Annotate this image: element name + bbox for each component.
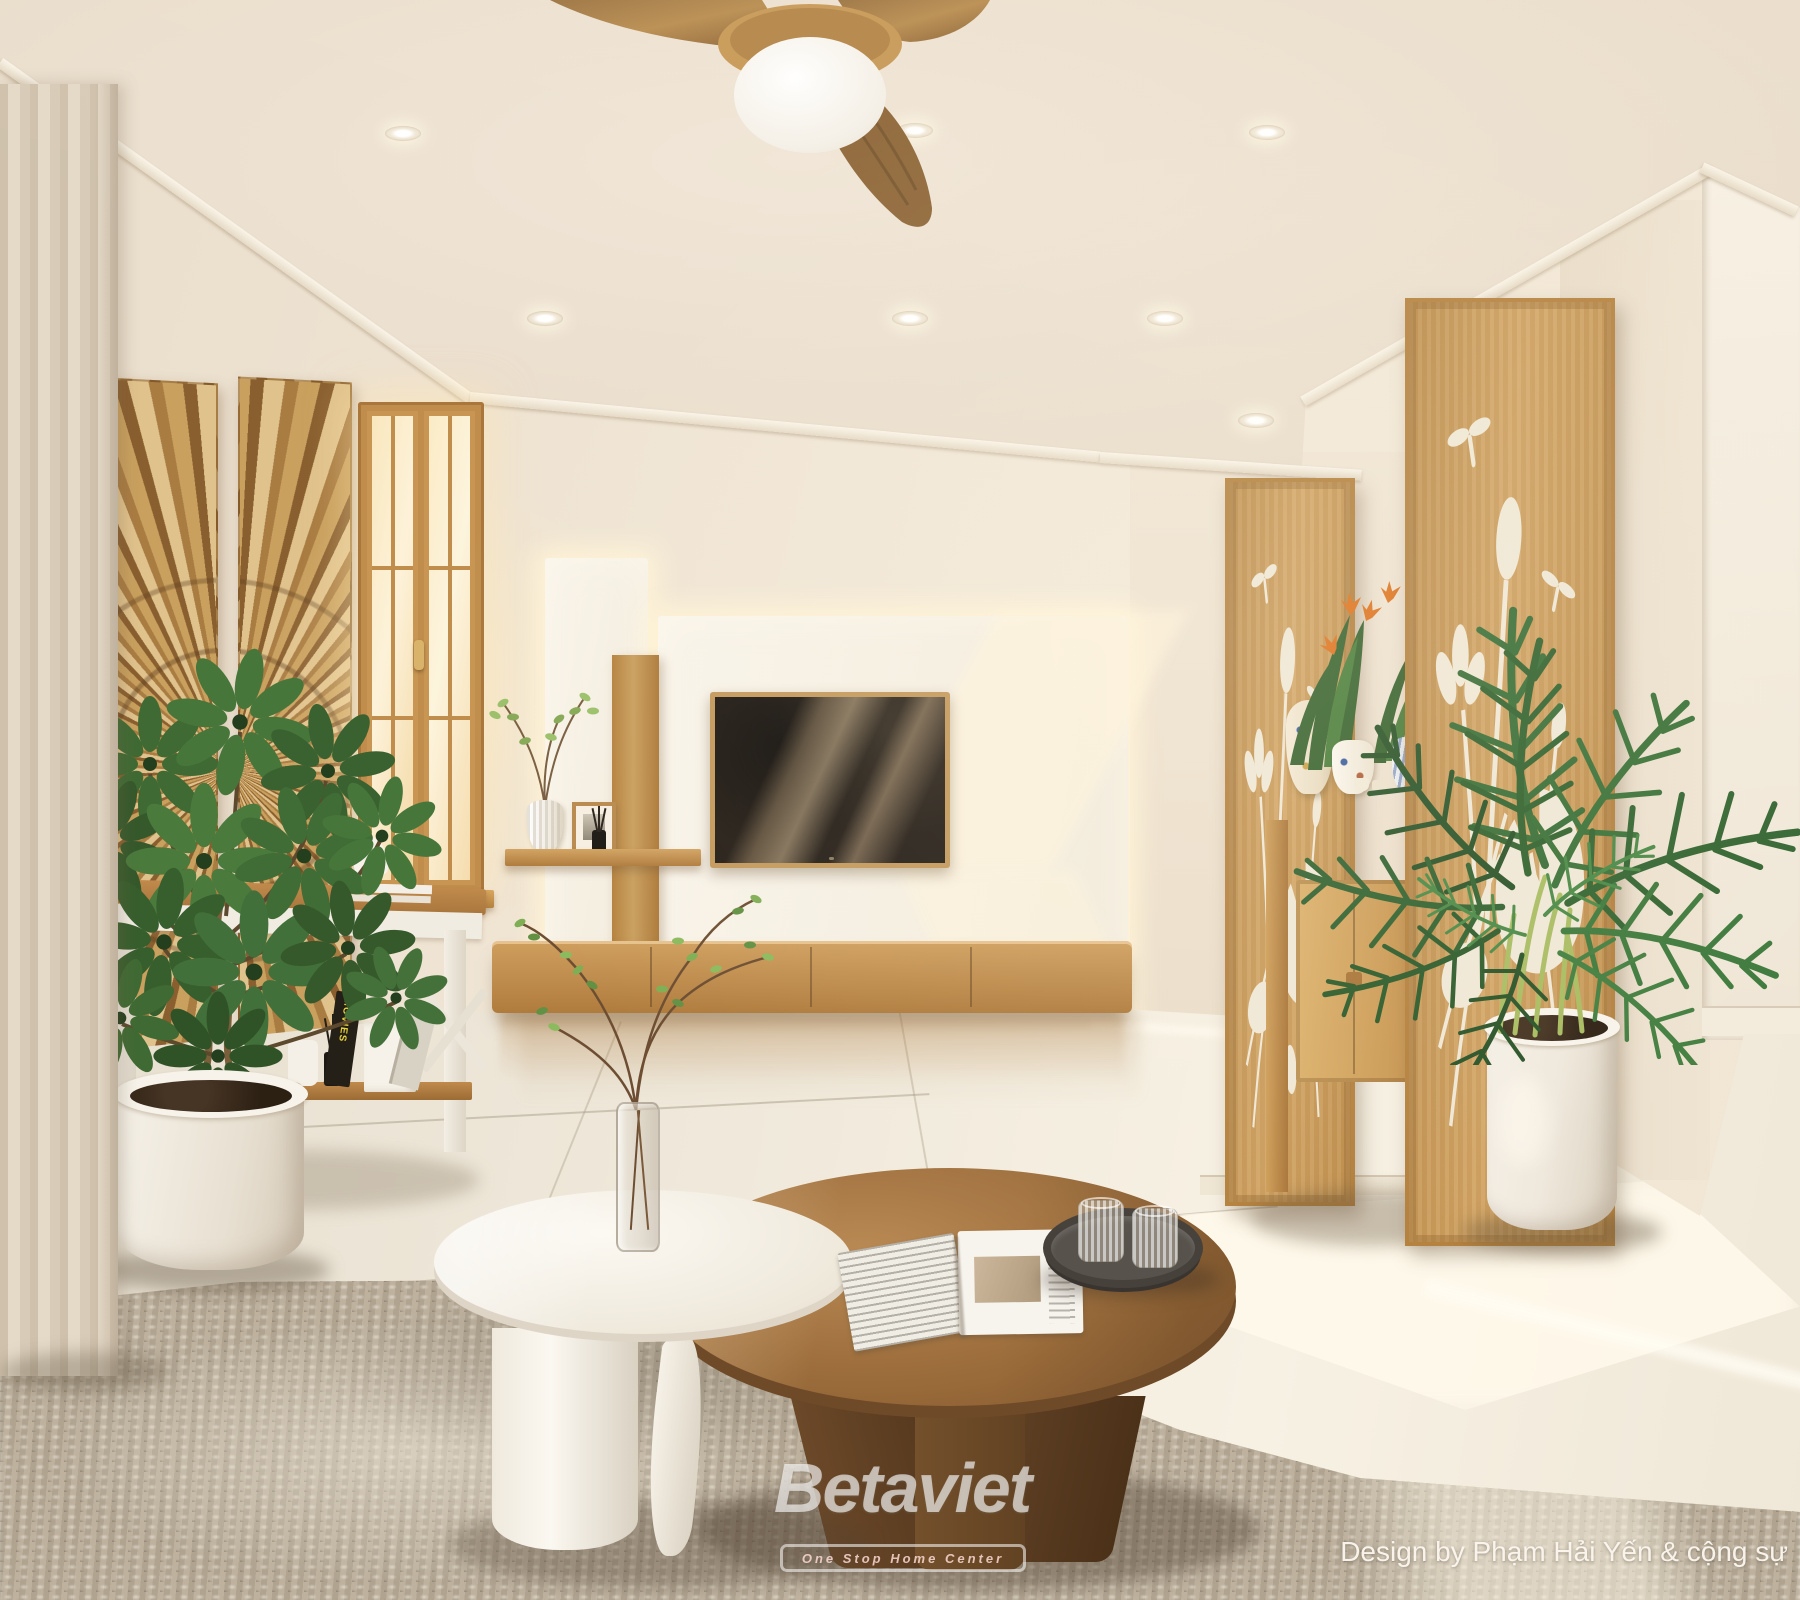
branch-arrangement: [420, 865, 900, 1135]
pot-sun-dapple: [1499, 1076, 1549, 1166]
downlight-icon: [892, 311, 928, 326]
pot-soil: [130, 1080, 292, 1112]
schefflera-pot: [118, 1082, 304, 1270]
magazine-photo: [974, 1256, 1041, 1303]
wood-shelf: [505, 849, 701, 866]
curtain: [0, 84, 118, 1376]
ceiling-fan: [520, 0, 1080, 250]
glass-vase: [616, 1102, 660, 1252]
downlight-icon: [385, 126, 421, 141]
cabinet-drawer-seam: [970, 947, 972, 1007]
vase-twig: [637, 1110, 649, 1230]
shelf-branches: [455, 645, 625, 815]
glass-rim: [1081, 1197, 1121, 1209]
tv-screen-reflection: [715, 697, 945, 863]
drinking-glass: [1078, 1200, 1124, 1262]
watermark-tagline: One Stop Home Center: [780, 1544, 1026, 1572]
magazine-left-page: [837, 1233, 971, 1352]
downlight-icon: [527, 311, 563, 326]
white-table-pedestal: [492, 1328, 638, 1550]
downlight-icon: [1238, 413, 1274, 428]
downlight-icon: [1249, 125, 1285, 140]
living-room-render: MOVIES: [0, 0, 1800, 1600]
design-credit: Design by Phạm Hải Yến & cộng sự: [1150, 1536, 1788, 1568]
tv-brand-dot: [829, 857, 834, 860]
curtain-floor-shadow: [0, 1352, 170, 1392]
watermark-logo: Betaviet: [752, 1448, 1052, 1528]
glass-rim: [1135, 1205, 1175, 1217]
areca-palm: [1260, 535, 1800, 1065]
tv: [710, 692, 950, 868]
downlight-icon: [1147, 311, 1183, 326]
drinking-glass: [1132, 1208, 1178, 1268]
